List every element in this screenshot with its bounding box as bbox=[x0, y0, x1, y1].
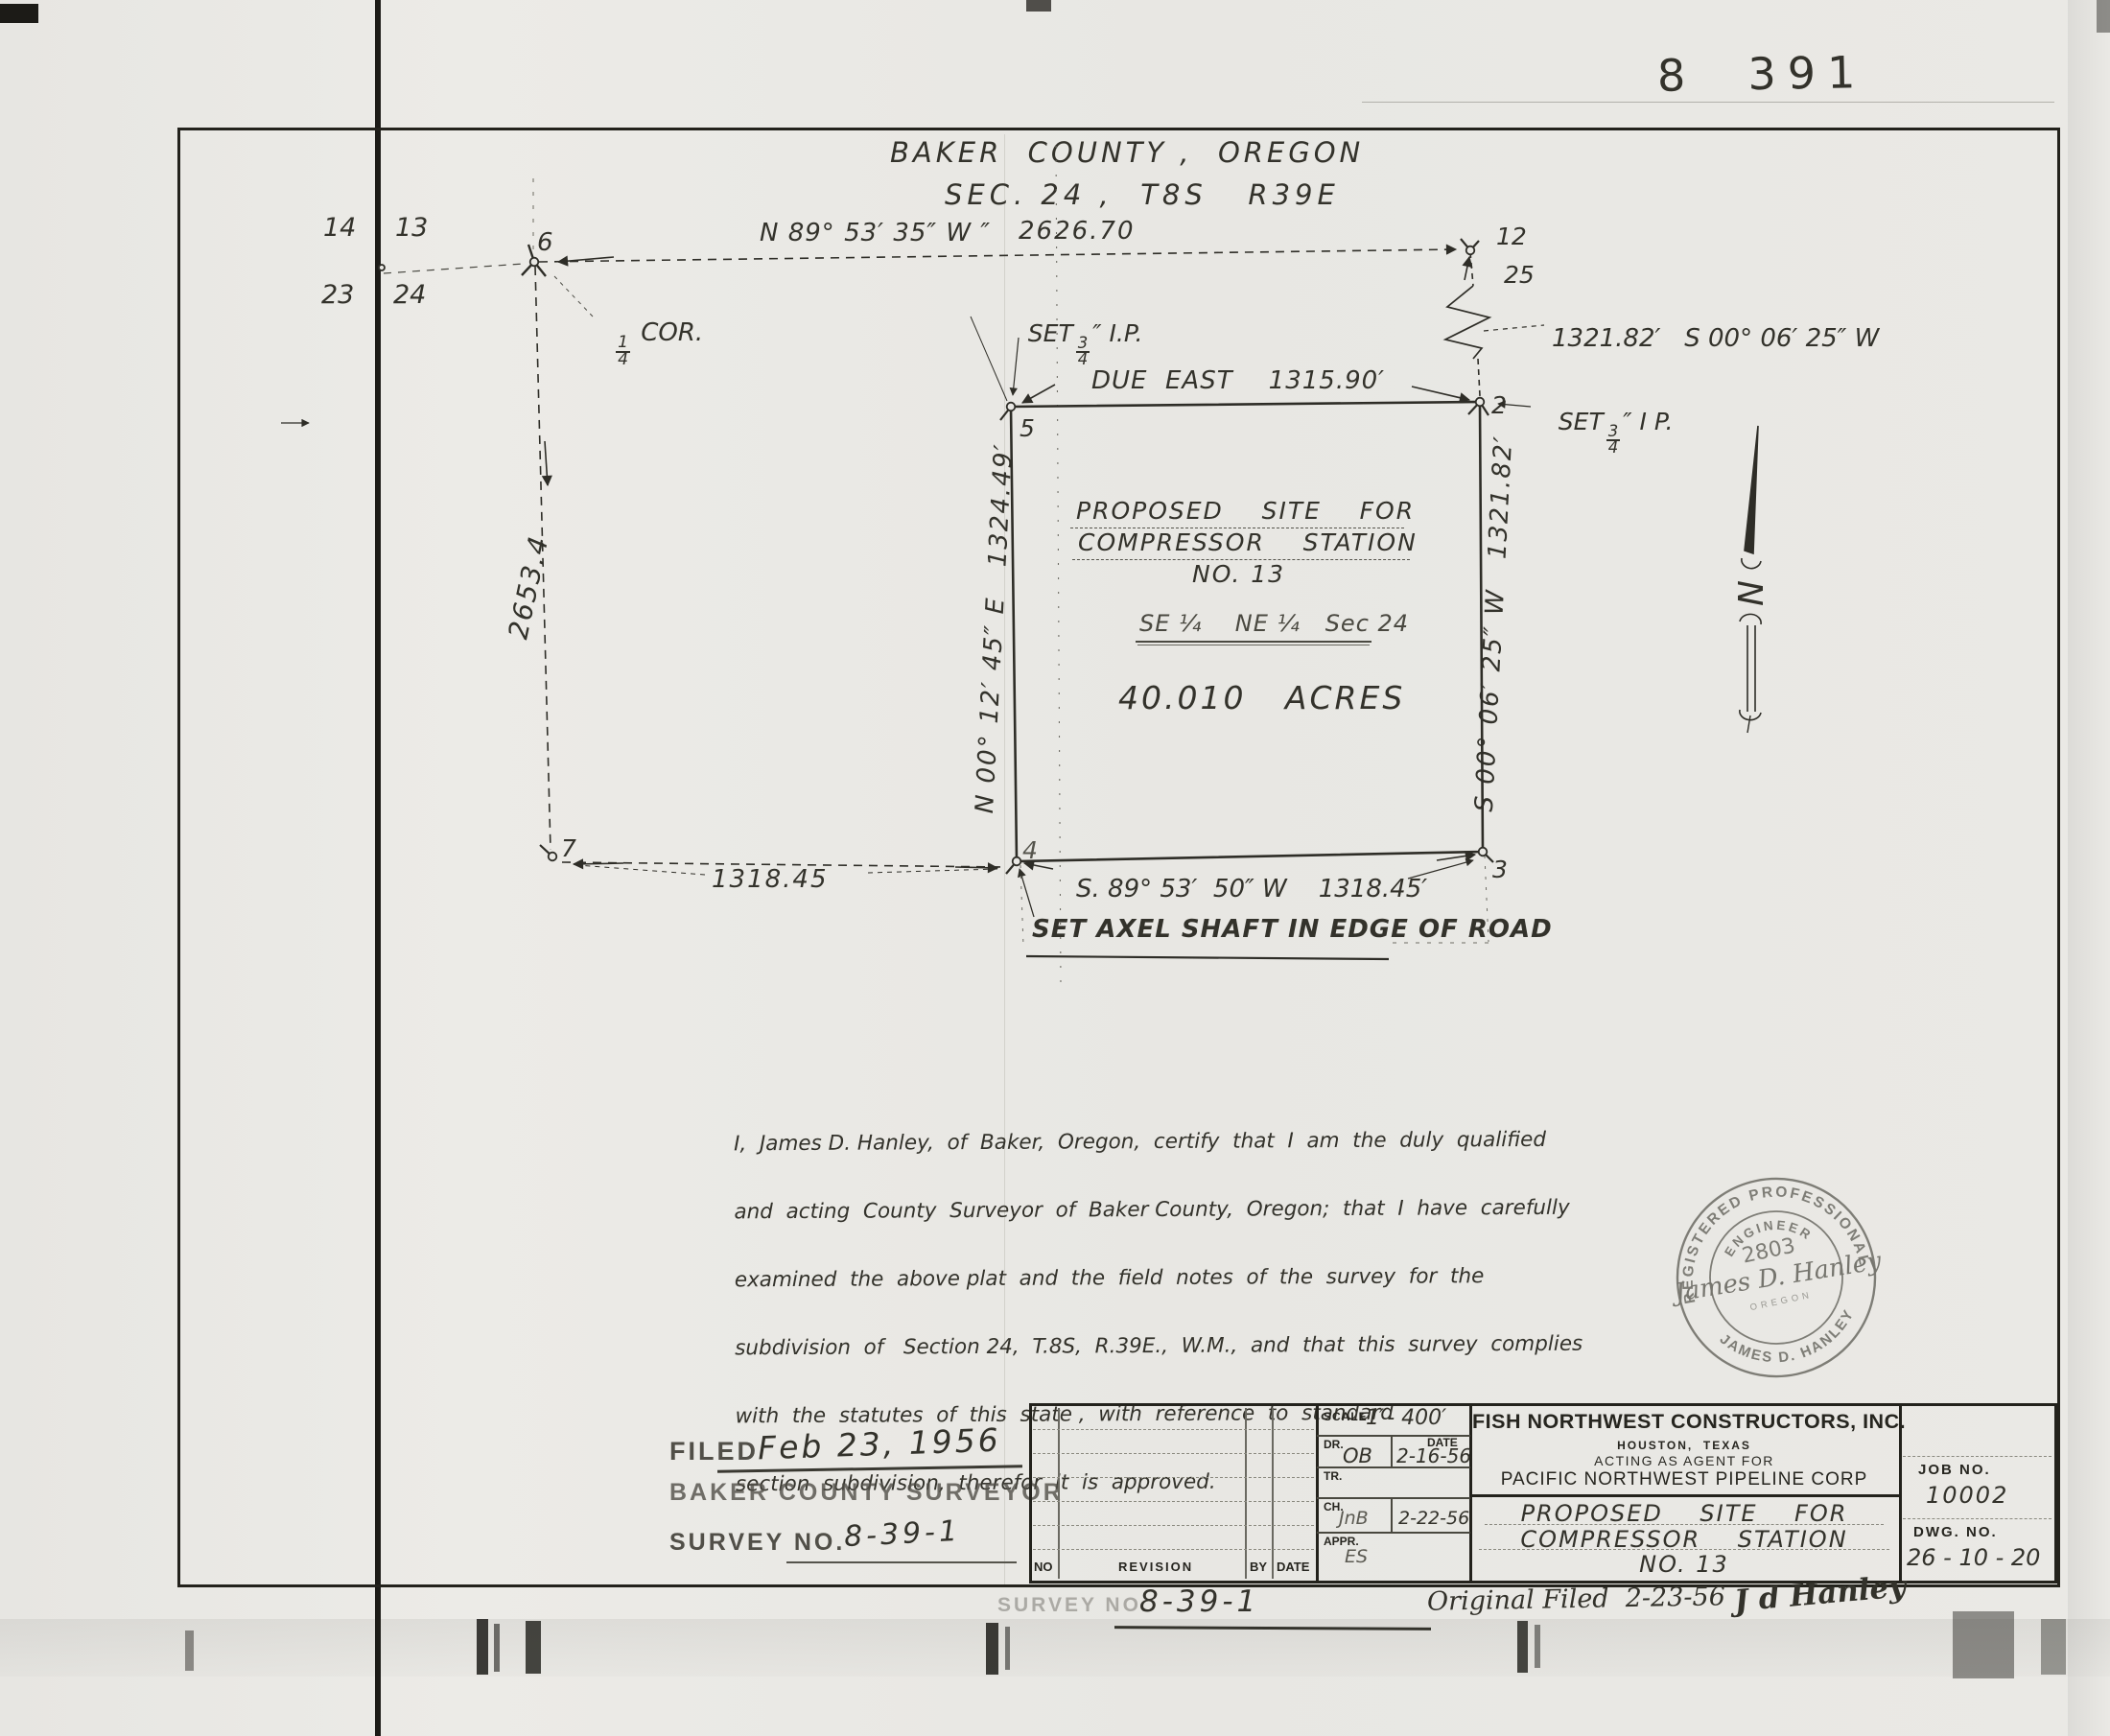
scale-col-line bbox=[1391, 1497, 1393, 1532]
certification-line: examined the above plat and the field no… bbox=[735, 1260, 1582, 1297]
revision-col-line bbox=[1058, 1408, 1060, 1579]
revision-col-line bbox=[1245, 1408, 1247, 1579]
point-label-3: 3 bbox=[1492, 856, 1508, 883]
east-offset-label: 1321.82′ S 00° 06′ 25″ W bbox=[1552, 324, 1879, 353]
southwest-distance-label: 1318.45 bbox=[712, 865, 829, 894]
dr-date: 2-16-56 bbox=[1396, 1444, 1471, 1467]
ip-fraction: 34 bbox=[1606, 425, 1621, 456]
title-block-divider bbox=[1316, 1403, 1319, 1584]
aliquot-underline-2 bbox=[1137, 645, 1370, 645]
dwg-no-label: DWG. NO. bbox=[1913, 1524, 1998, 1540]
company-divider bbox=[1472, 1494, 1899, 1497]
revision-header-date: DATE bbox=[1277, 1560, 1309, 1574]
drawing-title-underline bbox=[1479, 1549, 1889, 1550]
filed-label: FILED bbox=[669, 1437, 759, 1466]
point-label-5: 5 bbox=[1020, 414, 1035, 442]
county-surveyor-stamp: BAKER COUNTY SURVEYOR bbox=[669, 1479, 1064, 1507]
faint-top-line bbox=[1362, 102, 2054, 103]
certification-line: and acting County Surveyor of Baker Coun… bbox=[734, 1192, 1582, 1229]
revision-row-line bbox=[1033, 1477, 1314, 1478]
site-label-line3: NO. 13 bbox=[1192, 560, 1285, 588]
revision-header-name: REVISION bbox=[1118, 1560, 1193, 1574]
footer-survey-no: 8-39-1 bbox=[1139, 1584, 1259, 1619]
ip-fraction: 34 bbox=[1076, 337, 1090, 367]
job-row-line bbox=[1903, 1518, 2051, 1519]
survey-no-value: 8-39-1 bbox=[843, 1514, 962, 1554]
survey-no-underline bbox=[786, 1561, 1017, 1563]
revision-row-line bbox=[1033, 1429, 1314, 1430]
ch-value: JnB bbox=[1339, 1508, 1369, 1529]
south-line-label: S. 89° 53′ 50″ W 1318.45′ bbox=[1076, 875, 1427, 903]
footer-survey-no-label: SURVEY NO. bbox=[997, 1594, 1150, 1617]
revision-header-no: NO bbox=[1034, 1560, 1053, 1574]
section-number-se: 24 bbox=[393, 280, 426, 310]
scale-row-line bbox=[1317, 1497, 1470, 1499]
point-label-4: 4 bbox=[1022, 836, 1038, 864]
drawing-title-line1: PROPOSED SITE FOR bbox=[1472, 1500, 1896, 1527]
point-label-2: 2 bbox=[1491, 391, 1507, 419]
plat-title-line2: SEC. 24 , T8S R39E bbox=[945, 178, 1340, 211]
certification-line: subdivision of Section 24, T.8S, R.39E.,… bbox=[735, 1328, 1582, 1365]
paper-edge-shade bbox=[2068, 0, 2110, 1736]
company-city: HOUSTON, TEXAS bbox=[1472, 1439, 1896, 1452]
revision-row-line bbox=[1033, 1549, 1314, 1550]
dr-label: DR. bbox=[1324, 1438, 1344, 1451]
scale-col-line bbox=[1391, 1435, 1393, 1466]
due-east-label: DUE EAST 1315.90′ bbox=[1091, 366, 1385, 395]
aliquot-label: SE ¼ NE ¼ Sec 24 bbox=[1139, 610, 1409, 637]
aliquot-underline bbox=[1136, 641, 1371, 643]
revision-row-line bbox=[1033, 1525, 1314, 1526]
tr-label: TR. bbox=[1324, 1469, 1342, 1483]
appr-value: ES bbox=[1345, 1546, 1368, 1567]
footer-original-filed: Original Filed 2-23-56 bbox=[1427, 1582, 1725, 1616]
acreage-label: 40.010 ACRES bbox=[1118, 679, 1405, 716]
job-no-label: JOB NO. bbox=[1918, 1462, 1991, 1478]
film-band bbox=[0, 1619, 2110, 1677]
scan-artifact bbox=[0, 4, 38, 23]
scale-label: SCALE bbox=[1324, 1410, 1368, 1423]
site-label-line1: PROPOSED SITE FOR bbox=[1076, 497, 1415, 525]
section-number-sw: 23 bbox=[321, 280, 354, 310]
survey-no-label: SURVEY NO. bbox=[669, 1529, 845, 1557]
revision-col-line bbox=[1272, 1408, 1274, 1579]
site-label-line2: COMPRESSOR STATION bbox=[1078, 528, 1418, 556]
dr-value: OB bbox=[1343, 1444, 1372, 1467]
scanned-survey-plat: 8 391 BAKER COUNTY , OREGON SEC. 24 , T8… bbox=[0, 0, 2110, 1736]
point-label-12: 12 bbox=[1496, 223, 1527, 250]
scale-row-line bbox=[1317, 1532, 1470, 1534]
point-label-7: 7 bbox=[561, 834, 576, 862]
section-number-ne: 13 bbox=[395, 213, 428, 243]
axel-shaft-note: SET AXEL SHAFT IN EDGE OF ROAD bbox=[1032, 915, 1553, 944]
set-ip-right-label: SET34″ I P. bbox=[1528, 380, 1673, 483]
sheet-number: 8 391 bbox=[1657, 46, 1867, 102]
revision-row-line bbox=[1033, 1453, 1314, 1454]
client-name: PACIFIC NORTHWEST PIPELINE CORP bbox=[1472, 1469, 1896, 1490]
section-number-nw: 14 bbox=[323, 213, 356, 243]
revision-row-line bbox=[1033, 1501, 1314, 1502]
certification-line: I, James D. Hanley, of Baker, Oregon, ce… bbox=[734, 1124, 1582, 1161]
dwg-no-value: 26 - 10 - 20 bbox=[1907, 1544, 2040, 1571]
point-label-25: 25 bbox=[1504, 261, 1535, 289]
point-label-6: 6 bbox=[537, 228, 553, 257]
agent-line: ACTING AS AGENT FOR bbox=[1472, 1453, 1896, 1468]
company-name: FISH NORTHWEST CONSTRUCTORS, INC. bbox=[1472, 1410, 1896, 1434]
ch-date: 2-22-56 bbox=[1398, 1508, 1469, 1529]
quarter-corner-label: 14 COR. bbox=[581, 290, 703, 396]
revision-header-by: BY bbox=[1250, 1560, 1267, 1574]
scale-value: 1″- 400′ bbox=[1366, 1406, 1446, 1430]
north-line-distance: 2626.70 bbox=[1019, 217, 1136, 246]
scan-artifact bbox=[1026, 0, 1051, 12]
plat-title-line1: BAKER COUNTY , OREGON bbox=[890, 136, 1364, 169]
north-line-bearing: N 89° 53′ 35″ W ″ bbox=[760, 219, 991, 247]
job-row-line bbox=[1903, 1456, 2051, 1457]
drawing-title-line3: NO. 13 bbox=[1472, 1551, 1896, 1578]
job-no-value: 10002 bbox=[1926, 1482, 2008, 1509]
north-arrow-label: N bbox=[1729, 580, 1769, 606]
quarter-fraction: 14 bbox=[616, 336, 630, 367]
drawing-title-underline bbox=[1485, 1524, 1884, 1525]
